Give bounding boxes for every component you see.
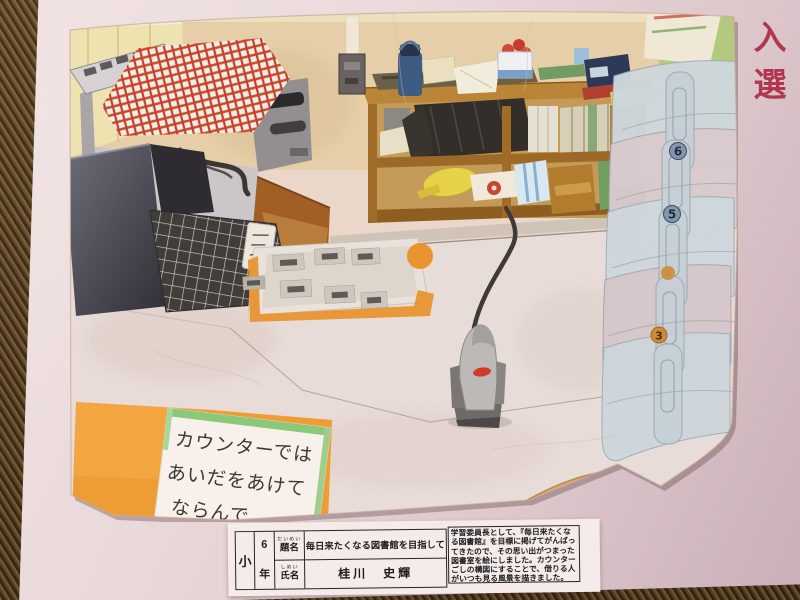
counter-front: カウンターでは あいだをあけて ならんで — [72, 402, 332, 522]
watercolor-painting: 6 5 3 — [62, 10, 738, 522]
counter-sign: カウンターでは あいだをあけて ならんで — [154, 408, 331, 522]
chair-number-5: 5 — [668, 208, 676, 222]
wall-pipe — [346, 16, 359, 60]
speaker-box — [339, 54, 365, 94]
stacked-chairs: 6 5 3 — [602, 61, 738, 461]
title-label: 題名 — [280, 544, 299, 554]
orange-dot — [661, 266, 675, 280]
white-books — [528, 106, 558, 152]
label-card-table: 小 6 年 だいめい 題名 毎日来たくなる図書館を目指して しめい 氏名 桂川 … — [235, 529, 448, 591]
photo-of-artwork: 6 5 3 — [0, 0, 800, 600]
award-stamp: 入選 — [741, 20, 789, 150]
cream-box — [422, 56, 456, 84]
name-label: 氏名 — [280, 572, 299, 582]
name-field-label: しめい 氏名 — [275, 559, 304, 587]
artist-name: 桂川 史輝 — [305, 558, 446, 588]
year-suffix: 年 — [259, 566, 270, 582]
label-card: 小 6 年 だいめい 題名 毎日来たくなる図書館を目指して しめい 氏名 桂川 … — [228, 519, 601, 597]
grade-year: 6 年 — [255, 532, 275, 589]
chair-number-3: 3 — [655, 330, 663, 343]
school-level: 小 — [236, 532, 255, 589]
leaning-poster — [644, 10, 722, 65]
blue-canister — [398, 52, 422, 96]
artwork-description: 学習委員長として、『毎日来たくな る図書館』を目標に掲げてがんばっ てきたので、… — [448, 525, 581, 584]
chair-number-6: 6 — [674, 145, 682, 159]
year-number: 6 — [261, 539, 267, 551]
artwork-title: 毎日来たくなる図書館を目指して — [305, 530, 446, 560]
card-tray — [241, 238, 434, 322]
title-field-label: だいめい 題名 — [275, 531, 304, 559]
